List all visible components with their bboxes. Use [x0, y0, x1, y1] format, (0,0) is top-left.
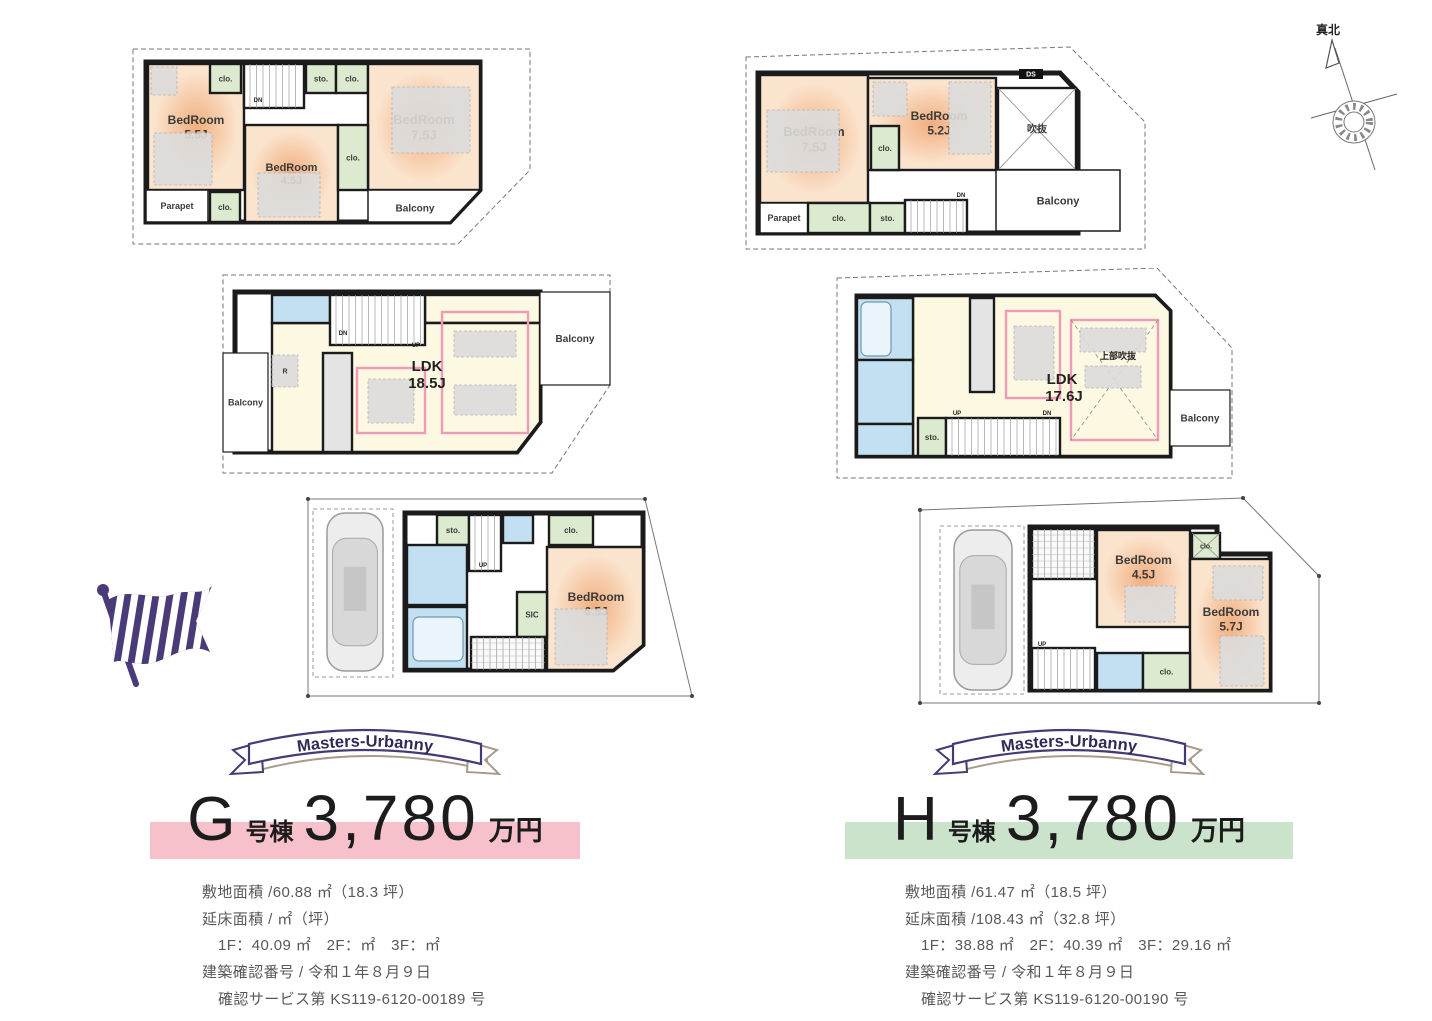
svg-text:LDK: LDK	[1047, 371, 1078, 388]
floorplan-g-2f: BalconyRBalconyLDK18.5JDNUP	[220, 273, 615, 480]
svg-text:sto.: sto.	[925, 433, 939, 442]
ribbon-banner-icon: Masters-Urbanny	[225, 714, 505, 786]
floorplan-h-1f: BedRoom4.5Jclo.BedRoom5.7Jclo.UP	[915, 496, 1322, 713]
svg-text:BedRoom: BedRoom	[1203, 605, 1260, 619]
detail-line: 1F：38.88 ㎡ 2F：40.39 ㎡ 3F：29.16 ㎡	[905, 933, 1293, 960]
svg-text:Parapet: Parapet	[160, 201, 193, 211]
flag-icon	[90, 576, 220, 688]
svg-text:LDK: LDK	[412, 358, 443, 375]
detail-line: 1F：40.09 ㎡ 2F：㎡ 3F：㎡	[202, 933, 580, 960]
price-row-g: G 号棟 3,780 万円	[150, 786, 580, 864]
unit-price: 3,780	[1006, 786, 1181, 850]
svg-text:UP: UP	[1038, 642, 1046, 648]
svg-text:sto.: sto.	[314, 74, 328, 83]
unit-suffix: 号棟	[948, 812, 996, 847]
svg-text:UP: UP	[412, 343, 420, 349]
unit-h-block: Masters-Urbanny H 号棟 3,780 万円 敷地面積 /61.4…	[845, 714, 1293, 1013]
svg-text:clo.: clo.	[219, 74, 233, 83]
unit-suffix: 号棟	[246, 812, 294, 847]
svg-text:SIC: SIC	[525, 610, 539, 619]
unit-price-unit: 万円	[489, 809, 543, 848]
compass-label: 真北	[1316, 22, 1340, 37]
svg-text:5.2J: 5.2J	[927, 124, 950, 138]
unit-h-details: 敷地面積 /61.47 ㎡（18.5 坪） 延床面積 /108.43 ㎡（32.…	[905, 880, 1293, 1013]
svg-text:Balcony: Balcony	[228, 398, 263, 408]
detail-line: 延床面積 / ㎡（坪）	[202, 907, 580, 934]
svg-text:clo.: clo.	[832, 214, 846, 223]
svg-text:UP: UP	[953, 411, 961, 417]
svg-text:sto.: sto.	[446, 526, 460, 535]
ribbon-banner-icon: Masters-Urbanny	[929, 714, 1209, 786]
svg-text:clo.: clo.	[218, 203, 232, 212]
detail-line: 確認サービス第 KS119-6120-00190 号	[905, 987, 1293, 1014]
svg-text:DS: DS	[1026, 71, 1036, 78]
detail-line: 確認サービス第 KS119-6120-00189 号	[202, 987, 580, 1014]
svg-text:Parapet: Parapet	[767, 213, 800, 223]
detail-line: 敷地面積 /61.47 ㎡（18.5 坪）	[905, 880, 1293, 907]
floorplan-h-2f: sto.Balcony上部吹抜LDK17.6JUPDN	[835, 268, 1235, 485]
svg-text:吹抜: 吹抜	[1027, 123, 1048, 136]
svg-text:17.6J: 17.6J	[1045, 388, 1083, 405]
svg-text:BedRoom: BedRoom	[266, 162, 318, 174]
svg-text:BedRoom: BedRoom	[168, 113, 225, 127]
svg-text:4.5J: 4.5J	[1132, 568, 1155, 582]
svg-text:Balcony: Balcony	[556, 334, 595, 345]
svg-text:clo.: clo.	[345, 74, 359, 83]
north-compass-icon: 真北	[1295, 18, 1410, 183]
svg-text:clo.: clo.	[564, 526, 578, 535]
svg-text:DN: DN	[254, 98, 263, 104]
svg-text:clo.: clo.	[346, 153, 360, 162]
svg-text:Balcony: Balcony	[1037, 195, 1081, 207]
svg-text:BedRoom: BedRoom	[568, 590, 625, 604]
svg-text:Balcony: Balcony	[396, 204, 435, 215]
unit-price-unit: 万円	[1191, 809, 1245, 848]
svg-text:R: R	[282, 368, 287, 375]
floorplan-h-3f: BedRoom7.5JBedRoom5.2Jclo.吹抜DSParapetclo…	[743, 42, 1148, 257]
floorplan-g-1f: sto.clo.BedRoom6.5JSICUP	[293, 497, 695, 704]
unit-g-details: 敷地面積 /60.88 ㎡（18.3 坪） 延床面積 / ㎡（坪） 1F：40.…	[202, 880, 580, 1013]
svg-text:sto.: sto.	[880, 214, 894, 223]
detail-line: 延床面積 /108.43 ㎡（32.8 坪）	[905, 907, 1293, 934]
svg-text:clo.: clo.	[1200, 543, 1212, 550]
svg-text:5.7J: 5.7J	[1219, 620, 1242, 634]
unit-price: 3,780	[304, 786, 479, 850]
detail-line: 敷地面積 /60.88 ㎡（18.3 坪）	[202, 880, 580, 907]
svg-text:clo.: clo.	[1160, 667, 1174, 676]
svg-text:DN: DN	[1043, 411, 1052, 417]
detail-line: 建築確認番号 / 令和１年８月９日	[202, 960, 580, 987]
unit-g-block: Masters-Urbanny G 号棟 3,780 万円 敷地面積 /60.8…	[150, 714, 580, 1013]
svg-text:18.5J: 18.5J	[408, 375, 446, 392]
svg-text:clo.: clo.	[878, 144, 892, 153]
svg-text:Balcony: Balcony	[1181, 414, 1220, 425]
svg-text:UP: UP	[479, 563, 487, 569]
detail-line: 建築確認番号 / 令和１年８月９日	[905, 960, 1293, 987]
svg-text:DN: DN	[339, 331, 348, 337]
price-row-h: H 号棟 3,780 万円	[845, 786, 1293, 864]
svg-text:上部吹抜: 上部吹抜	[1100, 350, 1137, 361]
svg-text:BedRoom: BedRoom	[1115, 553, 1172, 567]
floorplan-g-3f: BedRoom5.5Jclo.sto.clo.BedRoom7.5JBedRoo…	[130, 45, 533, 252]
unit-letter: H	[893, 789, 938, 851]
svg-text:DN: DN	[957, 193, 966, 199]
unit-letter: G	[187, 789, 235, 851]
